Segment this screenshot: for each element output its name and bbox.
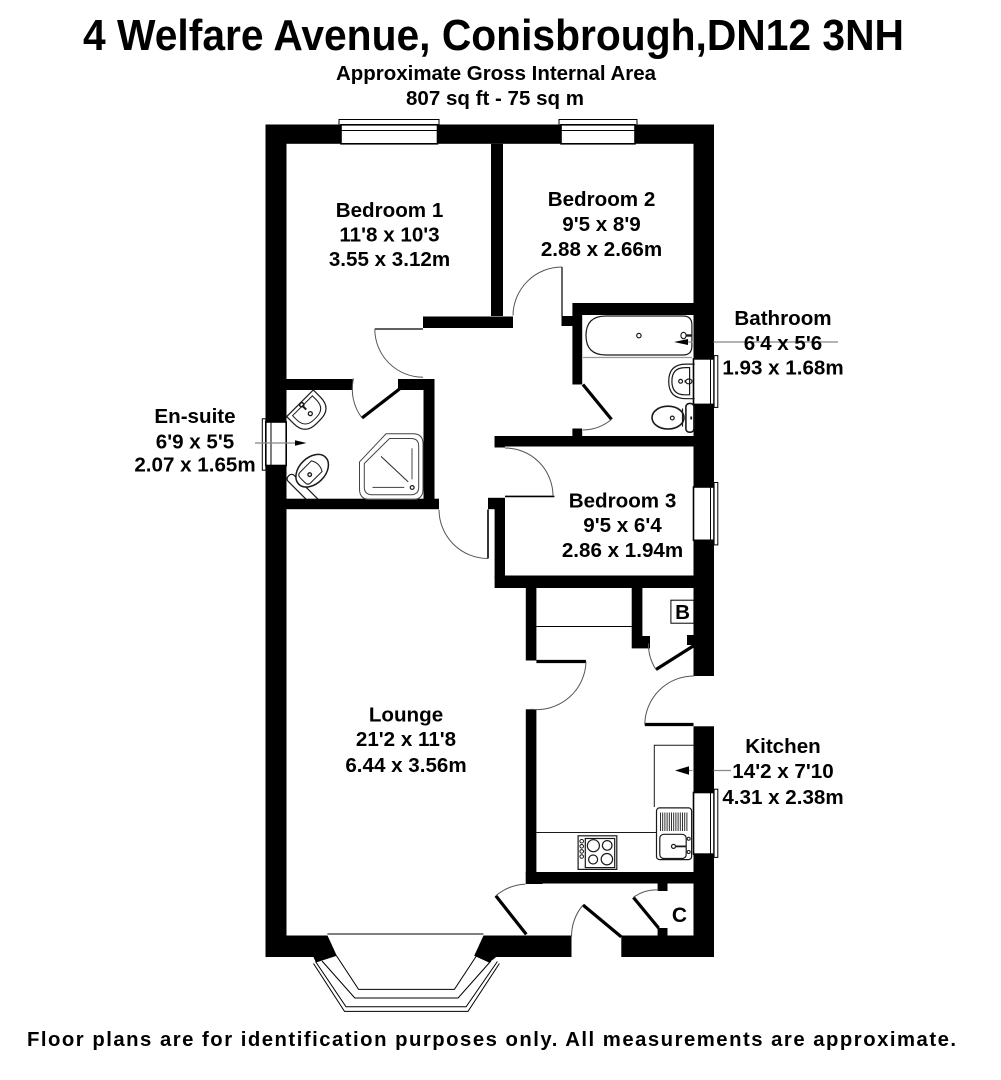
svg-text:4 Welfare Avenue, Conisbrough,: 4 Welfare Avenue, Conisbrough,DN12 3NH: [83, 11, 904, 60]
svg-text:Kitchen: Kitchen: [745, 735, 821, 758]
svg-text:Bathroom: Bathroom: [734, 307, 831, 330]
svg-text:B: B: [675, 601, 690, 624]
svg-text:9'5 x 6'4: 9'5 x 6'4: [583, 514, 662, 537]
svg-text:14'2 x 7'10: 14'2 x 7'10: [732, 760, 833, 783]
svg-text:9'5 x 8'9: 9'5 x 8'9: [562, 213, 641, 236]
svg-text:3.55 x 3.12m: 3.55 x 3.12m: [329, 248, 450, 271]
svg-text:Bedroom 2: Bedroom 2: [548, 188, 656, 211]
svg-text:4.31 x 2.38m: 4.31 x 2.38m: [722, 786, 843, 809]
svg-text:Approximate Gross Internal Are: Approximate Gross Internal Area: [336, 63, 657, 85]
svg-text:2.86 x 1.94m: 2.86 x 1.94m: [562, 539, 683, 562]
svg-text:C: C: [672, 904, 687, 927]
svg-text:Lounge: Lounge: [369, 704, 443, 727]
svg-text:2.07 x 1.65m: 2.07 x 1.65m: [134, 454, 255, 477]
svg-text:6.44 x 3.56m: 6.44 x 3.56m: [345, 754, 466, 777]
svg-text:11'8 x 10'3: 11'8 x 10'3: [339, 224, 439, 247]
svg-text:21'2 x 11'8: 21'2 x 11'8: [356, 728, 456, 751]
svg-text:6'4 x 5'6: 6'4 x 5'6: [744, 332, 823, 355]
svg-text:807 sq ft - 75 sq m: 807 sq ft - 75 sq m: [406, 88, 584, 110]
svg-text:1.93 x 1.68m: 1.93 x 1.68m: [722, 357, 843, 380]
svg-text:6'9 x 5'5: 6'9 x 5'5: [156, 431, 235, 454]
svg-text:2.88 x 2.66m: 2.88 x 2.66m: [541, 238, 662, 261]
svg-text:Bedroom 1: Bedroom 1: [336, 199, 444, 222]
svg-text:En-suite: En-suite: [154, 405, 235, 428]
svg-text:Bedroom 3: Bedroom 3: [569, 490, 677, 513]
svg-text:Floor plans are for identifica: Floor plans are for identification purpo…: [27, 1029, 956, 1051]
